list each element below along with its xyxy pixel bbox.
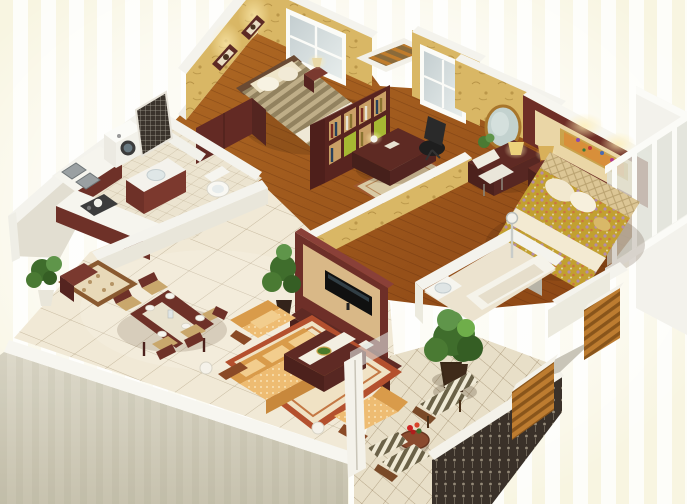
plate xyxy=(196,315,205,321)
mullion xyxy=(652,140,657,237)
shower-head xyxy=(507,213,518,224)
floorplan-svg xyxy=(0,0,687,504)
ball-floor-lamp xyxy=(312,422,324,434)
kettle xyxy=(94,199,102,207)
pillow xyxy=(278,67,298,81)
basin xyxy=(147,170,165,181)
floorplan-render xyxy=(0,0,687,504)
plate xyxy=(158,331,167,337)
plate xyxy=(166,293,175,299)
mullion xyxy=(672,127,677,224)
pillow xyxy=(257,77,279,91)
glassware xyxy=(168,310,173,318)
ball-floor-lamp xyxy=(200,362,212,374)
desk-lamp xyxy=(370,135,377,142)
plate xyxy=(146,305,155,311)
bowl xyxy=(317,347,331,355)
